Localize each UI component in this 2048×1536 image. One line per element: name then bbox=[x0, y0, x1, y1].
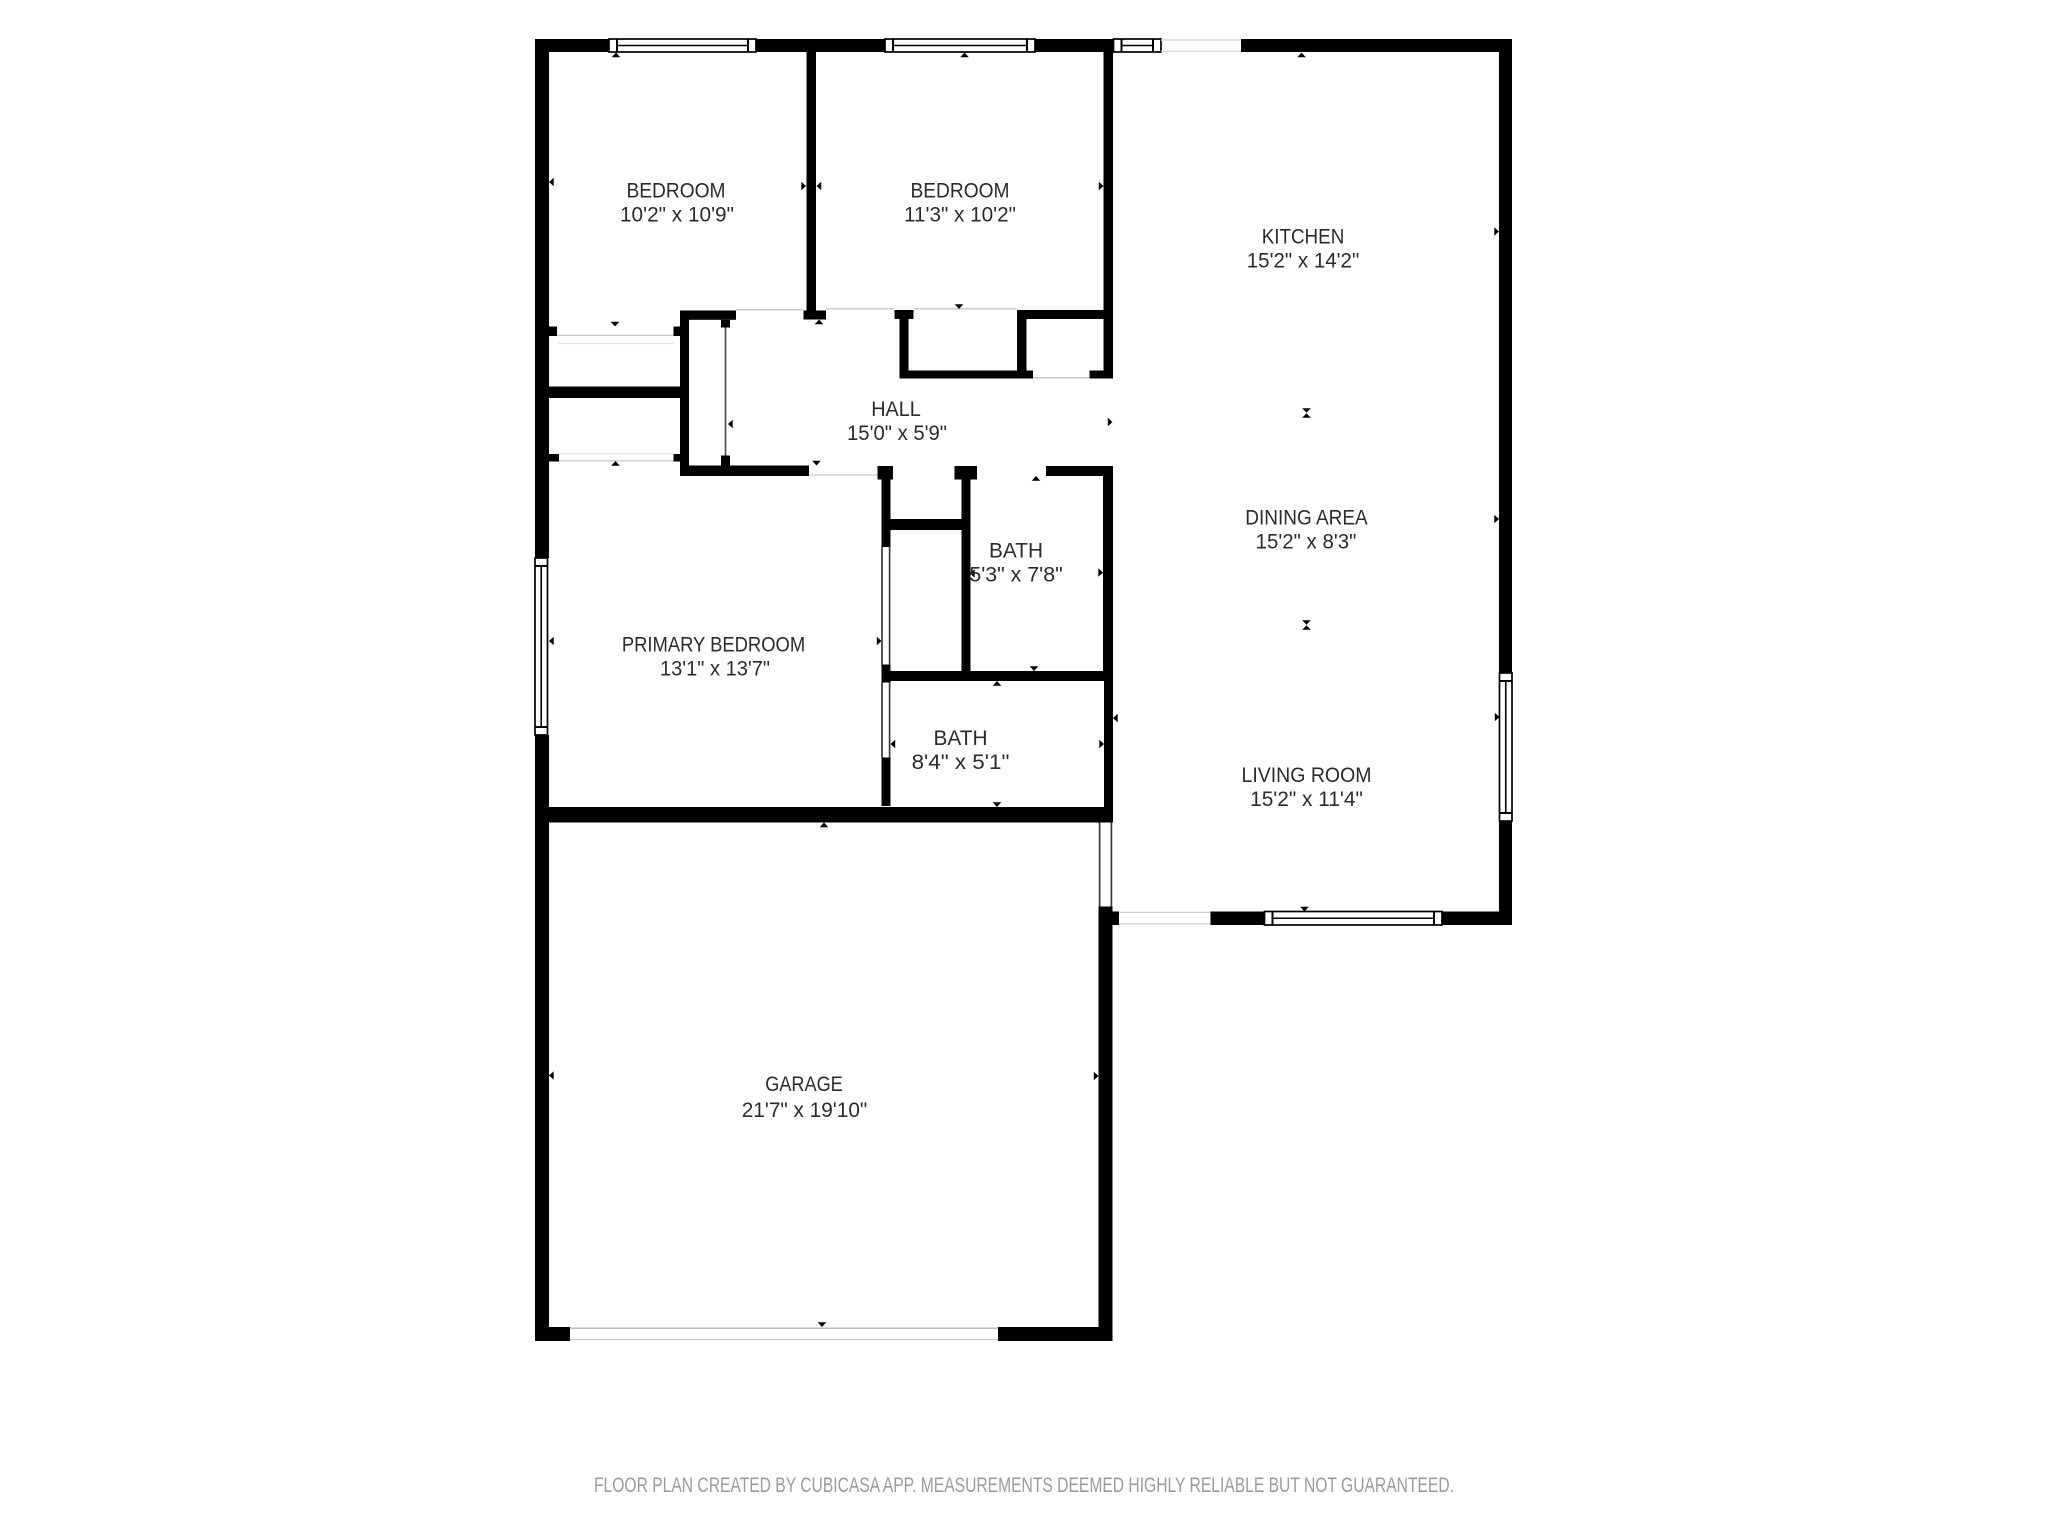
svg-text:15'2" x 8'3": 15'2" x 8'3" bbox=[1256, 530, 1357, 554]
svg-text:GARAGE: GARAGE bbox=[765, 1072, 843, 1096]
svg-text:BEDROOM: BEDROOM bbox=[911, 179, 1010, 203]
svg-text:15'0" x 5'9": 15'0" x 5'9" bbox=[847, 421, 947, 445]
svg-text:BEDROOM: BEDROOM bbox=[627, 179, 726, 203]
svg-text:LIVING ROOM: LIVING ROOM bbox=[1242, 763, 1372, 787]
svg-text:PRIMARY BEDROOM: PRIMARY BEDROOM bbox=[622, 633, 805, 657]
svg-text:8'4" x 5'1": 8'4" x 5'1" bbox=[912, 750, 1010, 774]
svg-text:5'3" x 7'8": 5'3" x 7'8" bbox=[969, 563, 1062, 587]
svg-text:BATH: BATH bbox=[934, 726, 988, 750]
svg-text:FLOOR PLAN CREATED BY CUBICASA: FLOOR PLAN CREATED BY CUBICASA APP. MEAS… bbox=[594, 1474, 1454, 1497]
svg-text:11'3" x 10'2": 11'3" x 10'2" bbox=[904, 203, 1016, 227]
svg-text:BATH: BATH bbox=[989, 539, 1043, 563]
svg-text:KITCHEN: KITCHEN bbox=[1262, 225, 1345, 249]
svg-text:13'1" x 13'7": 13'1" x 13'7" bbox=[660, 657, 770, 681]
svg-text:HALL: HALL bbox=[871, 397, 921, 421]
svg-text:10'2" x 10'9": 10'2" x 10'9" bbox=[620, 203, 734, 227]
svg-text:15'2" x 14'2": 15'2" x 14'2" bbox=[1247, 249, 1360, 273]
svg-text:DINING AREA: DINING AREA bbox=[1245, 506, 1368, 530]
svg-text:21'7" x 19'10": 21'7" x 19'10" bbox=[742, 1098, 868, 1122]
svg-text:15'2" x 11'4": 15'2" x 11'4" bbox=[1250, 787, 1363, 811]
